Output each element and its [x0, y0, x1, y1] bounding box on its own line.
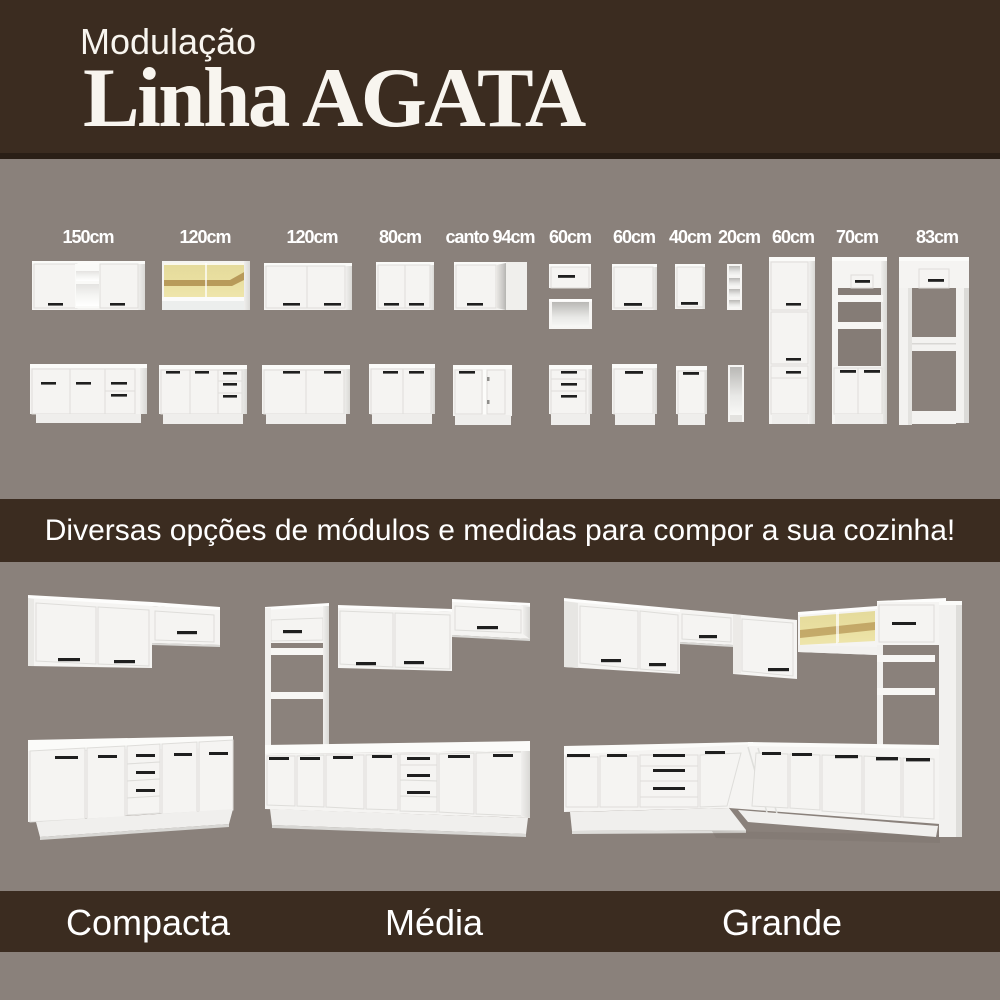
svg-text:150cm: 150cm: [62, 227, 113, 247]
svg-text:83cm: 83cm: [916, 227, 958, 247]
svg-text:Grande: Grande: [722, 902, 842, 943]
svg-text:20cm: 20cm: [718, 227, 760, 247]
svg-text:60cm: 60cm: [549, 227, 591, 247]
svg-text:80cm: 80cm: [379, 227, 421, 247]
svg-text:120cm: 120cm: [179, 227, 230, 247]
svg-text:Diversas opções de módulos e m: Diversas opções de módulos e medidas par…: [45, 514, 956, 547]
svg-text:Compacta: Compacta: [66, 902, 231, 943]
svg-text:canto 94cm: canto 94cm: [445, 227, 534, 247]
svg-text:70cm: 70cm: [836, 227, 878, 247]
svg-text:60cm: 60cm: [613, 227, 655, 247]
svg-text:Média: Média: [385, 902, 484, 943]
svg-text:Linha AGATA: Linha AGATA: [83, 51, 586, 145]
svg-text:120cm: 120cm: [286, 227, 337, 247]
svg-text:40cm: 40cm: [669, 227, 711, 247]
svg-text:60cm: 60cm: [772, 227, 814, 247]
